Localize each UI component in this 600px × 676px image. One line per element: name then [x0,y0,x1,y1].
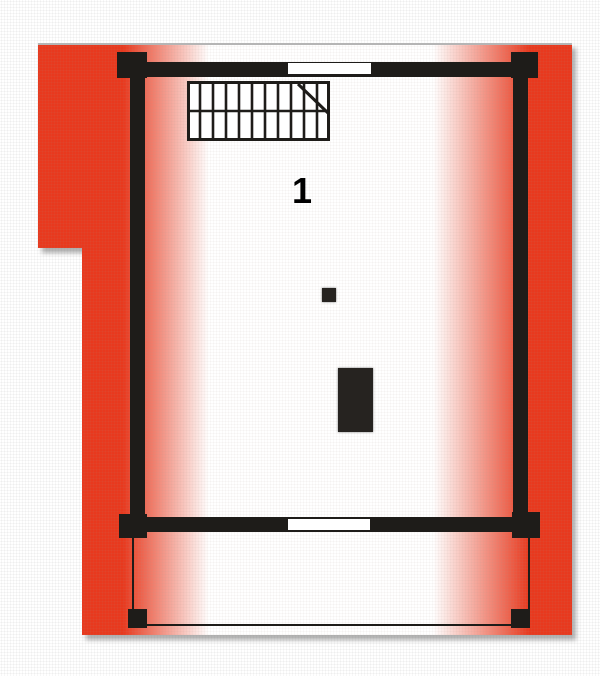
room-number: 1 [288,173,316,209]
wall-right [513,62,528,538]
porch-outline [132,532,530,626]
window-bottom [287,518,371,531]
chimney-marker [322,288,336,302]
porch-post-left [128,609,147,628]
porch-post-right [511,609,530,628]
wall-corner-post-bottom-left [119,514,147,538]
wall-corner-post-top-right [511,52,538,78]
staircase-icon [187,81,330,141]
floor-plan-canvas: 1 [0,0,600,676]
window-top [287,62,372,75]
wall-left [130,62,145,538]
wall-corner-post-bottom-right [512,512,540,538]
wall-corner-post-top-left [117,52,147,78]
stove-block [338,368,373,432]
